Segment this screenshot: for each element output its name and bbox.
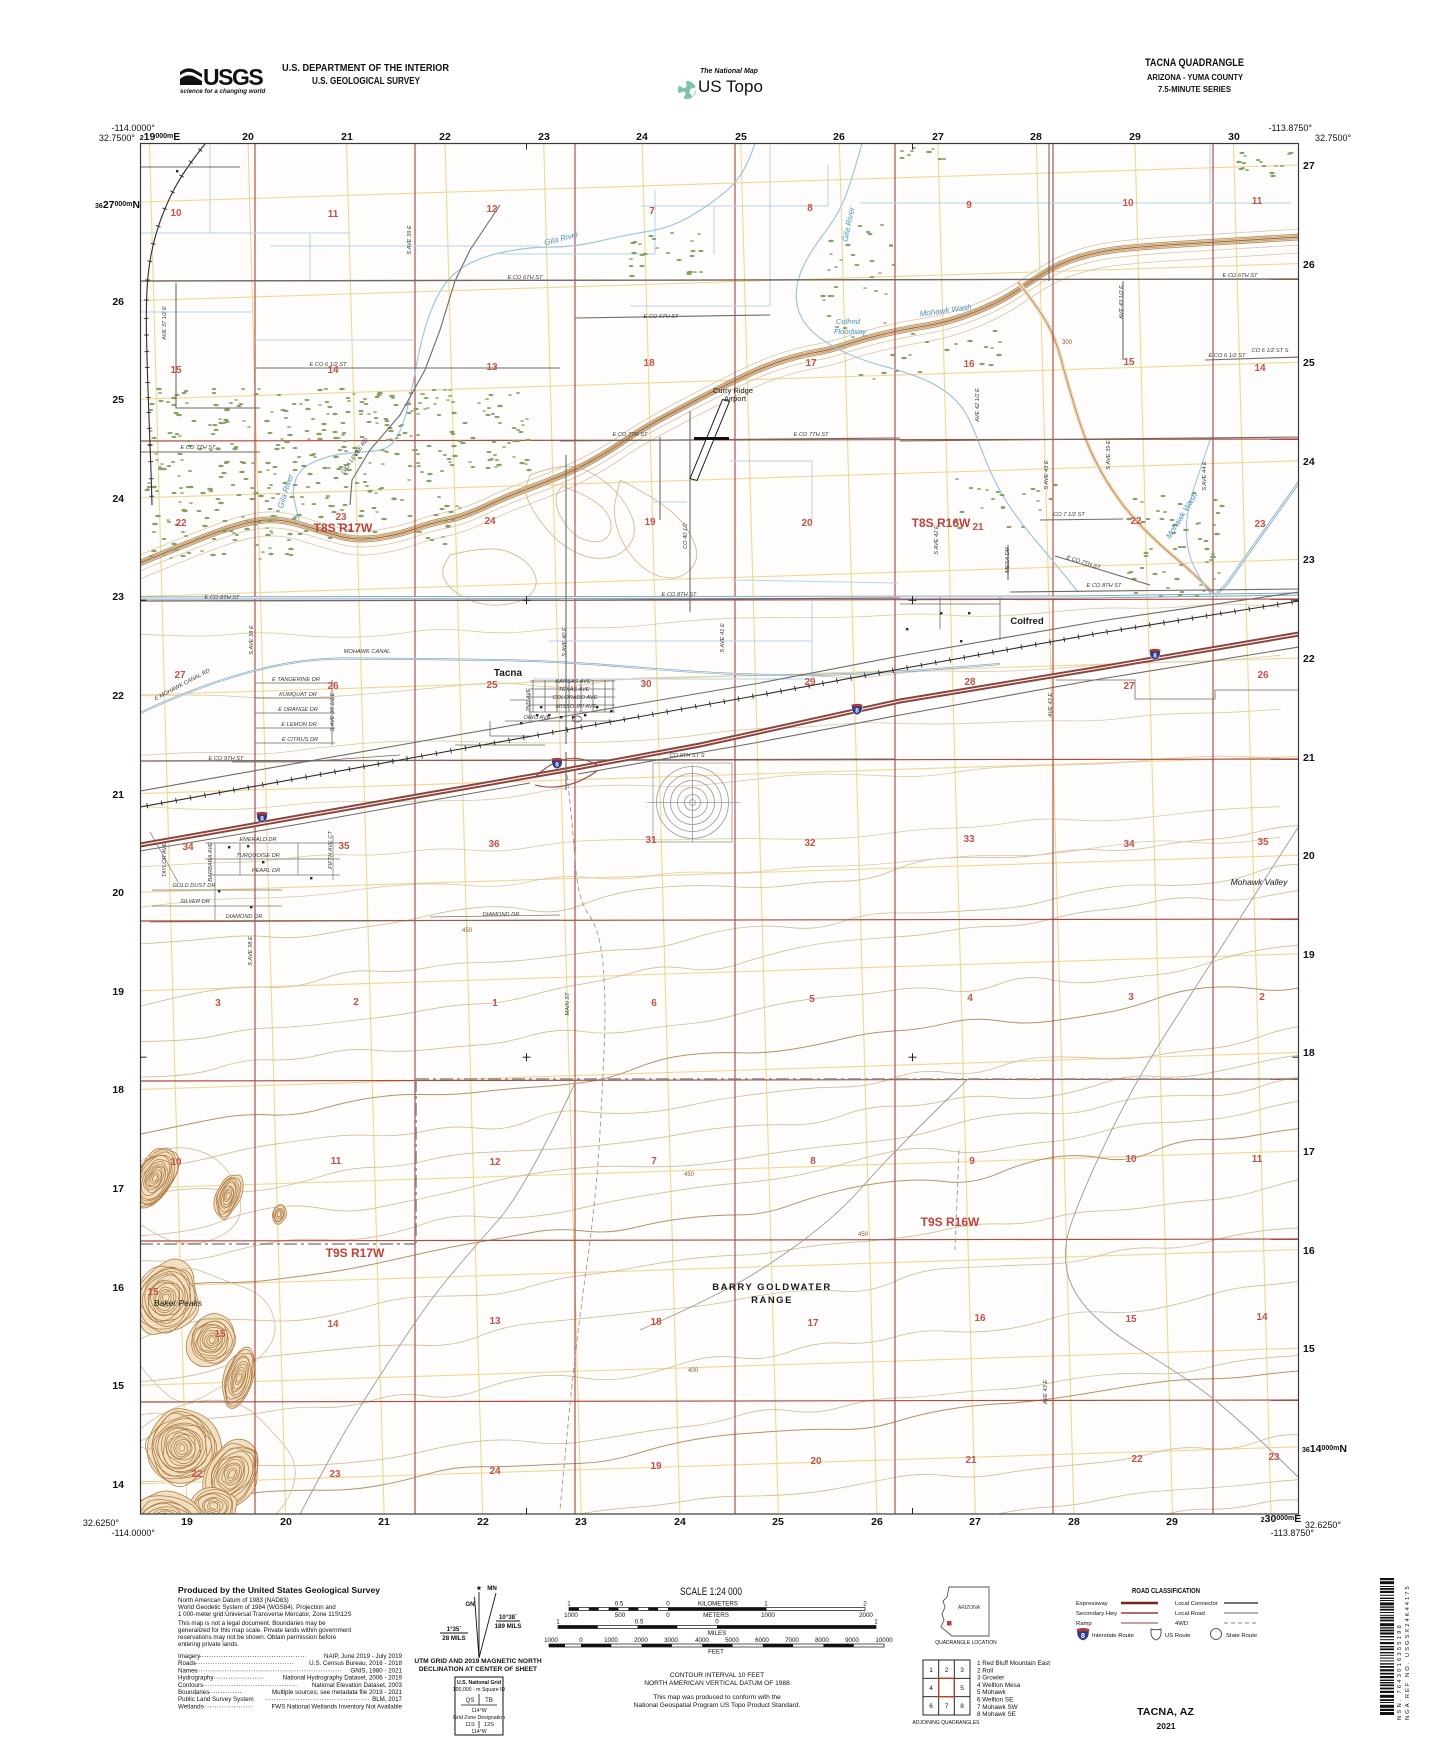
svg-text:-113.8750°: -113.8750°	[1271, 1528, 1315, 1538]
svg-text:114°W: 114°W	[471, 1708, 486, 1714]
svg-text:32.6250°: 32.6250°	[83, 1518, 120, 1528]
svg-text:★: ★	[475, 1585, 482, 1592]
svg-text:Ramp: Ramp	[1076, 1621, 1092, 1627]
svg-text:AVE 37 1/2 E: AVE 37 1/2 E	[162, 306, 168, 341]
svg-text:0.5: 0.5	[635, 1619, 644, 1626]
svg-text:This map was produced to confo: This map was produced to conform with th…	[653, 1694, 781, 1701]
svg-text:KILOMETERS: KILOMETERS	[698, 1601, 738, 1608]
svg-text:USGS: USGS	[203, 64, 263, 90]
svg-text:19: 19	[112, 986, 124, 998]
svg-text:COLORADO AVE: COLORADO AVE	[553, 695, 598, 701]
svg-text:7.5-MINUTE SERIES: 7.5-MINUTE SERIES	[1158, 85, 1232, 94]
svg-text:19: 19	[644, 517, 656, 528]
svg-text:2000: 2000	[859, 1612, 873, 1619]
svg-text:KUMQUAT DR: KUMQUAT DR	[279, 692, 317, 698]
svg-text:14: 14	[1256, 1312, 1268, 1323]
svg-text:10000: 10000	[875, 1637, 893, 1644]
svg-text:19: 19	[650, 1461, 662, 1472]
svg-text:E CO 8TH ST: E CO 8TH ST	[204, 595, 240, 601]
svg-text:E CO 6TH ST: E CO 6TH ST	[643, 314, 679, 320]
svg-text:23: 23	[575, 1516, 587, 1528]
svg-text:4WD: 4WD	[1175, 1621, 1188, 1627]
svg-text:20: 20	[112, 887, 124, 899]
svg-text:SILVER DR: SILVER DR	[180, 899, 210, 905]
svg-text:35: 35	[1257, 837, 1269, 848]
svg-text:20: 20	[242, 131, 254, 143]
svg-text:U.S. DEPARTMENT OF THE INTERIO: U.S. DEPARTMENT OF THE INTERIOR	[282, 63, 450, 74]
svg-text:6: 6	[929, 1703, 933, 1710]
svg-text:11S: 11S	[465, 1722, 475, 1728]
svg-text:PEARL DR: PEARL DR	[252, 868, 280, 874]
svg-text:21: 21	[1303, 752, 1315, 764]
svg-text:S AVE 40 E: S AVE 40 E	[562, 627, 568, 657]
svg-text:S AVE 38 E: S AVE 38 E	[248, 936, 254, 966]
svg-text:ADJOINING QUADRANGLES: ADJOINING QUADRANGLES	[913, 1720, 981, 1726]
svg-text:26: 26	[1257, 670, 1269, 681]
svg-text:Secondary Hwy: Secondary Hwy	[1076, 1611, 1117, 1617]
svg-text:28 MILS: 28 MILS	[442, 1635, 465, 1642]
svg-text:E TANGERINE DR: E TANGERINE DR	[272, 677, 320, 683]
svg-text:25: 25	[1303, 357, 1315, 369]
svg-text:1000: 1000	[604, 1637, 618, 1644]
svg-text:U.S. GEOLOGICAL SURVEY: U.S. GEOLOGICAL SURVEY	[312, 76, 420, 87]
svg-text:T8S R17W: T8S R17W	[314, 521, 373, 535]
svg-text:ROAD CLASSIFICATION: ROAD CLASSIFICATION	[1132, 1586, 1200, 1595]
svg-text:1: 1	[874, 1619, 878, 1626]
svg-text:3: 3	[1128, 992, 1134, 1003]
svg-text:1°35´: 1°35´	[447, 1626, 462, 1633]
svg-text:24: 24	[484, 516, 496, 527]
svg-text:22: 22	[1131, 1454, 1143, 1465]
svg-text:36: 36	[488, 839, 500, 850]
svg-text:35: 35	[338, 841, 350, 852]
svg-text:Boundaries: Boundaries	[178, 1689, 209, 1696]
svg-text:25: 25	[735, 131, 747, 143]
svg-text:10: 10	[170, 208, 182, 219]
svg-text:29: 29	[804, 677, 816, 688]
svg-text:National Geospatial Program US: National Geospatial Program US Topo Prod…	[634, 1702, 801, 1709]
svg-text:20: 20	[1303, 850, 1315, 862]
svg-text:20: 20	[280, 1516, 292, 1528]
svg-text:33: 33	[963, 834, 975, 845]
svg-text:15: 15	[147, 1287, 159, 1298]
svg-text:0.5: 0.5	[615, 1601, 624, 1608]
svg-text:8: 8	[810, 1156, 816, 1167]
svg-text:18: 18	[112, 1084, 124, 1096]
svg-text:11: 11	[328, 209, 339, 220]
svg-text:26: 26	[1303, 259, 1315, 271]
svg-text:19: 19	[181, 1516, 193, 1528]
svg-text:15: 15	[170, 365, 182, 376]
svg-text:16: 16	[974, 1313, 986, 1324]
svg-text:Hydrography: Hydrography	[178, 1675, 214, 1682]
svg-text:7: 7	[651, 1156, 657, 1167]
svg-text:4: 4	[967, 993, 973, 1004]
svg-text:Expressway: Expressway	[1076, 1601, 1108, 1607]
svg-text:RANGE: RANGE	[751, 1295, 793, 1306]
svg-text:30: 30	[1228, 131, 1240, 143]
svg-text:8: 8	[1081, 1631, 1085, 1640]
svg-text:NORTH AMERICAN VERTICAL DATUM: NORTH AMERICAN VERTICAL DATUM OF 1988	[644, 1680, 790, 1687]
svg-text:This map is not a legal docume: This map is not a legal document. Bounda…	[178, 1620, 326, 1627]
svg-text:2: 2	[353, 997, 359, 1008]
svg-text:2 Roll: 2 Roll	[977, 1667, 993, 1674]
svg-text:10: 10	[1122, 198, 1134, 209]
svg-text:8: 8	[960, 1703, 964, 1710]
svg-text:E CO 7TH ST: E CO 7TH ST	[612, 432, 648, 438]
svg-text:TEXAS AVE: TEXAS AVE	[558, 687, 589, 693]
svg-text:16: 16	[112, 1282, 124, 1294]
svg-text:27: 27	[174, 670, 186, 681]
svg-text:Baker Peaks: Baker Peaks	[154, 1298, 203, 1308]
svg-text:State Route: State Route	[1226, 1633, 1258, 1639]
svg-text:15: 15	[214, 1329, 226, 1340]
svg-text:1: 1	[929, 1667, 933, 1674]
svg-text:1: 1	[764, 1601, 768, 1608]
svg-text:reservations may not be shown.: reservations may not be shown. Obtain pe…	[178, 1634, 337, 1641]
svg-text:11: 11	[331, 1156, 342, 1167]
svg-text:15: 15	[1125, 1314, 1137, 1325]
svg-text:GNIS, 1980 - 2021: GNIS, 1980 - 2021	[350, 1667, 402, 1674]
svg-text:BARRY GOLDWATER: BARRY GOLDWATER	[712, 1282, 831, 1293]
svg-text:Floodway: Floodway	[834, 327, 867, 336]
svg-text:QUADRANGLE LOCATION: QUADRANGLE LOCATION	[935, 1640, 997, 1646]
svg-text:1000: 1000	[564, 1612, 578, 1619]
svg-text:10: 10	[1125, 1154, 1137, 1165]
svg-text:Grid Zone Designation: Grid Zone Designation	[453, 1715, 505, 1721]
svg-text:3000: 3000	[664, 1637, 678, 1644]
svg-text:S AVE 38 1/2 E: S AVE 38 1/2 E	[330, 692, 336, 731]
svg-text:100,000 - m Square ID: 100,000 - m Square ID	[453, 1687, 506, 1693]
svg-text:14: 14	[1254, 363, 1266, 374]
svg-text:ARIZONA - YUMA COUNTY: ARIZONA - YUMA COUNTY	[1147, 73, 1244, 82]
svg-text:Roads: Roads	[178, 1660, 196, 1667]
svg-text:29: 29	[1166, 1516, 1178, 1528]
svg-text:World Geodetic System of 1984: World Geodetic System of 1984 (WGS84). P…	[178, 1604, 336, 1611]
svg-text:E CITRUS DR: E CITRUS DR	[282, 737, 318, 743]
svg-text:5: 5	[809, 994, 815, 1005]
svg-text:22: 22	[112, 690, 124, 702]
svg-text:300: 300	[1062, 340, 1073, 346]
svg-text:34: 34	[182, 842, 194, 853]
svg-text:15: 15	[1303, 1343, 1315, 1355]
svg-text:9: 9	[969, 1156, 975, 1167]
svg-text:Multiple sources; see metad: Multiple sources; see metadata file 2019…	[272, 1689, 403, 1696]
svg-text:1: 1	[567, 1601, 571, 1608]
svg-text:E CO 6TH ST: E CO 6TH ST	[1222, 273, 1258, 279]
svg-text:1: 1	[492, 998, 498, 1009]
svg-text:17: 17	[805, 358, 817, 369]
svg-text:23: 23	[112, 591, 124, 603]
svg-text:DECLINATION AT CENTER OF SHEET: DECLINATION AT CENTER OF SHEET	[419, 1666, 537, 1673]
svg-text:2ND AVE: 2ND AVE	[526, 688, 532, 713]
svg-text:6000: 6000	[755, 1637, 769, 1644]
svg-text:AVE 43 E: AVE 43 E	[1043, 1380, 1049, 1406]
svg-text:S AVE 42 E: S AVE 42 E	[934, 525, 940, 555]
svg-text:AVE 43 E: AVE 43 E	[1048, 693, 1054, 719]
svg-text:GN: GN	[465, 1601, 475, 1608]
svg-text:7 Mohawk SW: 7 Mohawk SW	[977, 1704, 1018, 1711]
svg-text:5 Mohawk: 5 Mohawk	[977, 1689, 1007, 1696]
svg-text:S AVE 39 E: S AVE 39 E	[407, 225, 413, 255]
svg-text:NSN. 7643016355198: NSN. 7643016355198	[1397, 1623, 1403, 1720]
svg-text:Contours: Contours	[178, 1682, 203, 1689]
svg-text:TB: TB	[485, 1698, 493, 1704]
svg-text:NGA REF NO. USGSX24K44175: NGA REF NO. USGSX24K44175	[1405, 1584, 1411, 1720]
svg-text:8: 8	[260, 816, 264, 823]
svg-text:E CO 7TH ST: E CO 7TH ST	[793, 432, 829, 438]
svg-text:24: 24	[489, 1466, 501, 1477]
svg-text:25: 25	[486, 680, 498, 691]
svg-text:16: 16	[1303, 1245, 1315, 1257]
svg-text:Imagery: Imagery	[178, 1653, 201, 1660]
svg-text:27: 27	[932, 131, 944, 143]
svg-text:MISSOURI AVE: MISSOURI AVE	[556, 704, 597, 710]
svg-text:National Hydrography Dataset: National Hydrography Dataset, 2006 - 201…	[283, 1675, 403, 1682]
svg-text:22: 22	[439, 131, 451, 143]
svg-text:FIFTH AVE CT: FIFTH AVE CT	[328, 831, 334, 869]
svg-text:E CO 6 1/2 ST: E CO 6 1/2 ST	[1209, 353, 1247, 359]
svg-text:1000: 1000	[544, 1637, 558, 1644]
svg-text:TAYLOR AVE: TAYLOR AVE	[162, 843, 168, 878]
svg-text:QS: QS	[466, 1698, 475, 1704]
svg-text:23: 23	[1268, 1452, 1280, 1463]
svg-text:27: 27	[1303, 160, 1315, 172]
svg-text:Local Connector: Local Connector	[1175, 1601, 1218, 1607]
svg-text:21: 21	[112, 789, 124, 801]
svg-text:T9S R16W: T9S R16W	[921, 1215, 980, 1229]
svg-text:3: 3	[215, 998, 221, 1009]
svg-text:S AVE 38 E: S AVE 38 E	[249, 625, 255, 655]
svg-text:Public Land Survey System: Public Land Survey System	[178, 1696, 254, 1703]
svg-text:22: 22	[1303, 653, 1315, 665]
svg-text:21: 21	[965, 1455, 977, 1466]
svg-text:4000: 4000	[695, 1637, 709, 1644]
svg-text:E CO 8TH ST: E CO 8TH ST	[661, 592, 697, 598]
svg-text:OHIO AVE: OHIO AVE	[524, 715, 551, 721]
svg-text:E CO 8TH ST: E CO 8TH ST	[1086, 583, 1122, 589]
svg-text:BARBARA AVE: BARBARA AVE	[208, 842, 214, 882]
svg-text:14: 14	[112, 1479, 124, 1491]
svg-text:7: 7	[945, 1703, 949, 1710]
svg-text:U.S. Census Bureau, 2016 -: U.S. Census Bureau, 2016 - 2018	[309, 1660, 402, 1667]
svg-text:18: 18	[643, 358, 655, 369]
svg-text:22: 22	[1130, 516, 1142, 527]
svg-text:UTM GRID AND 2019 MAGNETIC NOR: UTM GRID AND 2019 MAGNETIC NORTH	[414, 1658, 541, 1665]
svg-text:9000: 9000	[845, 1637, 859, 1644]
svg-text:DIAMOND DR: DIAMOND DR	[483, 912, 520, 918]
svg-text:25: 25	[772, 1516, 784, 1528]
svg-text:15: 15	[1123, 357, 1135, 368]
svg-text:18: 18	[1303, 1047, 1315, 1059]
svg-text:5: 5	[960, 1685, 964, 1692]
svg-text:1000: 1000	[761, 1612, 775, 1619]
svg-text:CO 6 1/2 ST S: CO 6 1/2 ST S	[1252, 348, 1289, 354]
svg-text:11: 11	[1252, 196, 1263, 207]
svg-text:science for a changing world: science for a changing world	[180, 88, 265, 95]
svg-text:13: 13	[489, 1316, 501, 1327]
svg-text:21: 21	[341, 131, 353, 143]
svg-text:24: 24	[112, 493, 124, 505]
svg-text:28: 28	[964, 677, 976, 688]
svg-text:GOLD DUST DR: GOLD DUST DR	[173, 883, 216, 889]
svg-text:FEET: FEET	[708, 1649, 724, 1656]
svg-text:18: 18	[650, 1317, 662, 1328]
svg-text:30: 30	[640, 679, 652, 690]
svg-text:CONTOUR INTERVAL 10 FEET: CONTOUR INTERVAL 10 FEET	[670, 1672, 764, 1679]
svg-text:CO 9TH ST S: CO 9TH ST S	[669, 753, 704, 759]
svg-text:generalized for this map scale: generalized for this map scale. Private …	[178, 1627, 352, 1634]
svg-text:16: 16	[963, 359, 975, 370]
svg-text:22: 22	[477, 1516, 489, 1528]
svg-text:1: 1	[556, 1619, 560, 1626]
svg-text:BLM, 2017: BLM, 2017	[372, 1696, 402, 1703]
svg-text:2021: 2021	[1157, 1721, 1176, 1731]
svg-text:6: 6	[651, 998, 657, 1009]
svg-text:Airport: Airport	[724, 394, 747, 403]
svg-text:25: 25	[112, 394, 124, 406]
svg-text:26: 26	[112, 296, 124, 308]
svg-text:20: 20	[810, 1456, 822, 1467]
svg-text:entering private lands.: entering private lands.	[178, 1641, 239, 1648]
svg-text:0: 0	[666, 1612, 670, 1619]
svg-text:21: 21	[378, 1516, 390, 1528]
svg-text:TACNA QUADRANGLE: TACNA QUADRANGLE	[1145, 57, 1244, 69]
svg-text:12: 12	[486, 204, 498, 215]
svg-text:26: 26	[871, 1516, 883, 1528]
svg-text:21: 21	[972, 522, 984, 533]
svg-text:SCALE 1:24 000: SCALE 1:24 000	[680, 1586, 742, 1598]
svg-text:DIAMOND DR: DIAMOND DR	[226, 914, 263, 920]
svg-text:0: 0	[715, 1619, 719, 1626]
svg-text:CO 7 1/2 ST: CO 7 1/2 ST	[1053, 512, 1085, 518]
svg-text:3: 3	[960, 1667, 964, 1674]
svg-text:Colfred: Colfred	[836, 317, 861, 326]
svg-text:27: 27	[1123, 681, 1135, 692]
svg-text:MESA DR: MESA DR	[1005, 547, 1011, 573]
svg-text:AVE 42 1/2 E: AVE 42 1/2 E	[975, 388, 981, 423]
svg-text:17: 17	[1303, 1146, 1315, 1158]
svg-text:32.7500°: 32.7500°	[99, 133, 136, 143]
svg-text:22: 22	[175, 518, 187, 529]
svg-text:12S: 12S	[484, 1722, 494, 1728]
svg-text:MOHAWK CANAL: MOHAWK CANAL	[344, 649, 391, 655]
svg-text:E CO 6 1/2 ST: E CO 6 1/2 ST	[310, 362, 348, 368]
svg-text:34: 34	[1123, 839, 1135, 850]
svg-text:15: 15	[112, 1380, 124, 1392]
svg-text:27: 27	[969, 1516, 981, 1528]
svg-text:32.7500°: 32.7500°	[1315, 133, 1352, 143]
svg-text:U.S. National Grid: U.S. National Grid	[457, 1680, 501, 1686]
svg-text:FWS National Wetlands Inven: FWS National Wetlands Inventory Not Avai…	[272, 1703, 403, 1710]
svg-text:17: 17	[807, 1318, 819, 1329]
svg-text:24: 24	[636, 131, 648, 143]
svg-text:AVE 43 1/2 E: AVE 43 1/2 E	[1119, 285, 1125, 320]
svg-text:8: 8	[555, 762, 559, 769]
svg-text:ARIZONA: ARIZONA	[958, 1605, 981, 1611]
svg-text:500: 500	[615, 1612, 626, 1619]
svg-text:2: 2	[863, 1601, 867, 1608]
svg-text:400: 400	[688, 1368, 699, 1374]
svg-text:E ORANGE DR: E ORANGE DR	[278, 707, 318, 713]
svg-text:26: 26	[327, 681, 339, 692]
svg-text:8: 8	[855, 708, 859, 715]
svg-text:8 Mohawk SE: 8 Mohawk SE	[977, 1711, 1016, 1718]
svg-text:23: 23	[1303, 554, 1315, 566]
svg-text:Interstate Route: Interstate Route	[1092, 1633, 1135, 1639]
svg-text:Produced by the United States: Produced by the United States Geological…	[178, 1585, 380, 1595]
svg-text:National Elevation Dataset,: National Elevation Dataset, 2003	[312, 1682, 403, 1689]
svg-text:E CO 6TH ST: E CO 6TH ST	[507, 275, 543, 281]
svg-text:2000: 2000	[634, 1637, 648, 1644]
svg-text:US Topo: US Topo	[698, 77, 763, 96]
svg-text:7: 7	[649, 206, 655, 217]
svg-text:450: 450	[684, 1172, 695, 1178]
svg-text:1 Red Bluff Mountain East: 1 Red Bluff Mountain East	[977, 1660, 1050, 1667]
svg-text:3 Growler: 3 Growler	[977, 1675, 1004, 1682]
svg-text:The National Map: The National Map	[700, 68, 759, 75]
svg-text:31: 31	[645, 835, 657, 846]
svg-text:MN: MN	[487, 1585, 497, 1592]
svg-text:T9S R17W: T9S R17W	[326, 1246, 385, 1260]
svg-text:10°38´: 10°38´	[499, 1614, 517, 1621]
svg-text:14: 14	[327, 1319, 339, 1330]
svg-text:24: 24	[674, 1516, 686, 1528]
svg-text:KANSAS AVE: KANSAS AVE	[555, 679, 591, 685]
svg-text:28: 28	[1068, 1516, 1080, 1528]
svg-text:189 MILS: 189 MILS	[495, 1623, 522, 1630]
svg-text:28: 28	[1030, 131, 1042, 143]
svg-text:5000: 5000	[725, 1637, 739, 1644]
svg-text:8000: 8000	[815, 1637, 829, 1644]
svg-text:26: 26	[833, 131, 845, 143]
svg-text:E LEMON DR: E LEMON DR	[281, 722, 316, 728]
svg-text:450: 450	[858, 1232, 869, 1238]
svg-text:S AVE 44 E: S AVE 44 E	[1202, 461, 1208, 491]
svg-text:1 000-meter grid:Universal Tra: 1 000-meter grid:Universal Transverse Me…	[178, 1611, 352, 1618]
svg-text:23: 23	[538, 131, 550, 143]
svg-text:S AVE 43 E: S AVE 43 E	[1044, 460, 1050, 490]
svg-text:Tacna: Tacna	[494, 668, 523, 679]
svg-text:2: 2	[1259, 992, 1265, 1003]
svg-text:-114.0000°: -114.0000°	[112, 1528, 156, 1538]
svg-text:4: 4	[929, 1685, 933, 1692]
svg-text:17: 17	[112, 1183, 124, 1195]
svg-text:32: 32	[804, 838, 816, 849]
svg-text:9: 9	[966, 200, 972, 211]
svg-text:24: 24	[1303, 456, 1315, 468]
svg-text:North American Datum of 1983 (: North American Datum of 1983 (NAD83)	[178, 1597, 289, 1604]
svg-text:7000: 7000	[785, 1637, 799, 1644]
svg-text:2: 2	[945, 1667, 949, 1674]
svg-text:Colfred: Colfred	[1010, 616, 1043, 627]
svg-text:10: 10	[170, 1157, 182, 1168]
svg-text:6 Wellton SE: 6 Wellton SE	[977, 1697, 1013, 1704]
svg-text:22: 22	[191, 1469, 203, 1480]
svg-text:29: 29	[1129, 131, 1141, 143]
svg-text:4 Wellton Mesa: 4 Wellton Mesa	[977, 1682, 1021, 1689]
svg-text:12: 12	[489, 1157, 501, 1168]
svg-text:0: 0	[579, 1637, 583, 1644]
svg-text:CO 40 1/2: CO 40 1/2	[683, 522, 689, 549]
svg-text:-113.8750°: -113.8750°	[1269, 123, 1313, 133]
svg-text:TACNA, AZ: TACNA, AZ	[1137, 1706, 1195, 1718]
svg-text:0: 0	[666, 1601, 670, 1608]
svg-text:114°W: 114°W	[471, 1729, 486, 1735]
svg-text:MILES: MILES	[708, 1630, 727, 1637]
svg-text:8: 8	[807, 203, 813, 214]
svg-text:T8S R16W: T8S R16W	[912, 516, 971, 530]
